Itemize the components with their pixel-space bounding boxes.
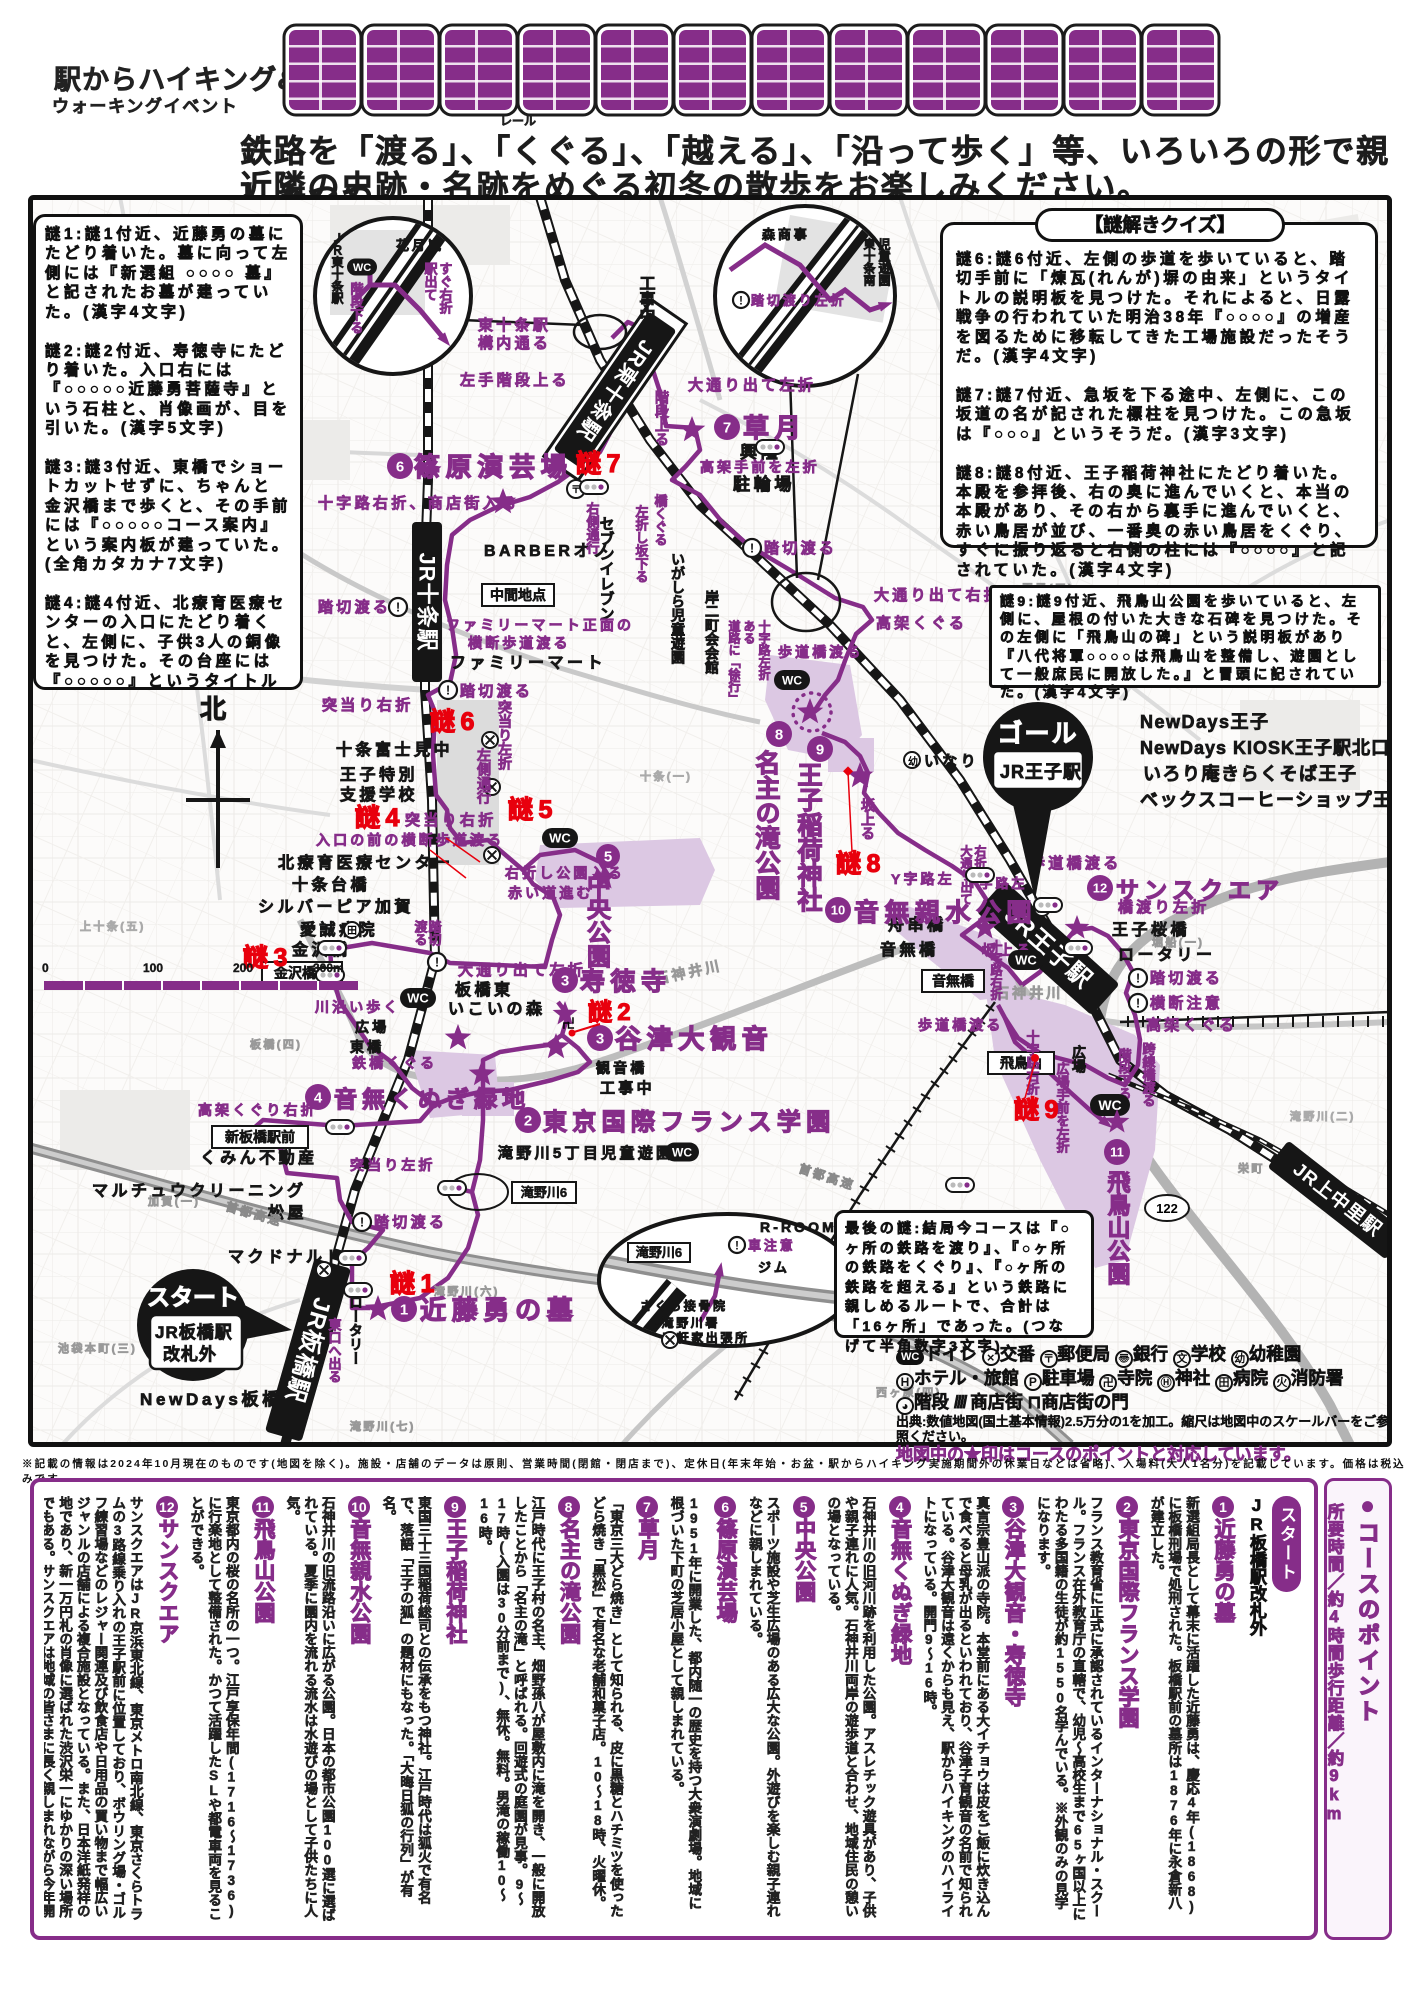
svg-text:踏切渡る: 踏切渡る [460, 682, 533, 700]
svg-text:右折: 右折 [973, 844, 987, 870]
svg-text:渡る: 渡る [413, 919, 428, 946]
svg-text:謎7: 謎7 [576, 450, 626, 478]
svg-text:幼: 幼 [908, 755, 918, 768]
svg-text:5: 5 [604, 848, 612, 865]
svg-text:Y字路左: Y字路左 [891, 871, 955, 887]
svg-text:NewDays板橋: NewDays板橋 [140, 1389, 283, 1409]
svg-text:十字路右折: 十字路右折 [1025, 1029, 1041, 1096]
svg-text:ロータリー: ロータリー [348, 1295, 364, 1365]
svg-text:謎4: 謎4 [355, 804, 405, 832]
svg-text:広場: 広場 [355, 1019, 389, 1035]
svg-text:100: 100 [143, 961, 163, 975]
svg-text:中間地点: 中間地点 [490, 587, 546, 603]
svg-text:WC: WC [672, 1145, 692, 1159]
svg-text:栄町: 栄町 [1237, 1161, 1265, 1175]
svg-text:横断注意: 横断注意 [1150, 994, 1223, 1012]
svg-text:橋くぐる: 橋くぐる [653, 493, 668, 546]
svg-text:赤い道進む: 赤い道進む [508, 885, 594, 901]
svg-text:歩道橋渡る: 歩道橋渡る [778, 644, 864, 660]
svg-text:北: 北 [200, 694, 232, 724]
svg-text:NewDays KIOSK王子駅北口店: NewDays KIOSK王子駅北口店 [1140, 737, 1392, 758]
svg-text:東京国際フランス学園: 東京国際フランス学園 [543, 1108, 836, 1136]
svg-text:十字路右折、商店街入る: 十字路右折、商店街入る [318, 494, 519, 512]
svg-text:加賀(一): 加賀(一) [147, 1194, 200, 1208]
svg-text:観音橋: 観音橋 [596, 1060, 647, 1076]
svg-text:1: 1 [400, 1301, 408, 1318]
svg-text:堀船(一): 堀船(一) [1152, 935, 1204, 949]
svg-text:岸二町会会館: 岸二町会会館 [704, 589, 720, 675]
svg-text:首都高速: 首都高速 [224, 1198, 284, 1229]
svg-text:ゴール: ゴール [997, 719, 1078, 748]
svg-text:踏切渡る: 踏切渡る [1150, 969, 1223, 987]
svg-text:名主の滝公園: 名主の滝公園 [752, 749, 781, 900]
svg-text:入口の前の横断歩道渡る: 入口の前の横断歩道渡る [316, 832, 504, 848]
svg-text:!: ! [750, 541, 754, 556]
svg-text:NewDays王子: NewDays王子 [1140, 712, 1270, 732]
svg-text:東十条駅: 東十条駅 [478, 316, 551, 334]
svg-text:階段下る: 階段下る [1117, 1047, 1132, 1100]
svg-text:草月: 草月 [743, 413, 806, 443]
svg-text:寿徳寺: 寿徳寺 [580, 967, 672, 996]
svg-text:いこいの森: いこいの森 [448, 999, 546, 1018]
svg-text:滝野川6: 滝野川6 [521, 1185, 567, 1200]
svg-text:上十条(五): 上十条(五) [80, 919, 146, 933]
svg-text:!: ! [360, 1215, 364, 1230]
svg-text:右側通行: 右側通行 [585, 501, 601, 555]
svg-text:突当り左折: 突当り左折 [497, 699, 513, 771]
svg-text:シルバーピア加賀: シルバーピア加賀 [258, 897, 414, 916]
svg-text:工事中: 工事中 [637, 275, 656, 324]
svg-text:首都高速: 首都高速 [797, 1161, 857, 1193]
svg-text:3: 3 [561, 972, 569, 989]
svg-text:石神井川: 石神井川 [994, 985, 1063, 1001]
svg-text:謎9: 謎9 [1014, 1096, 1064, 1124]
svg-text:音無親水公園: 音無親水公園 [854, 898, 1037, 927]
svg-text:飛鳥山公園: 飛鳥山公園 [1104, 1170, 1131, 1285]
svg-text:4: 4 [314, 1089, 323, 1106]
svg-text:7: 7 [723, 419, 731, 436]
svg-text:愛誠病院: 愛誠病院 [300, 920, 378, 939]
svg-text:新板橋駅前: 新板橋駅前 [225, 1129, 295, 1145]
svg-text:十字路右折: 十字路右折 [989, 939, 1003, 1001]
svg-text:0: 0 [42, 961, 49, 975]
svg-text:左手階段上る: 左手階段上る [459, 371, 570, 389]
svg-text:踏切渡る: 踏切渡る [318, 598, 391, 616]
svg-text:池袋本町(三): 池袋本町(三) [58, 1341, 137, 1355]
svg-text:突当り左折: 突当り左折 [350, 1157, 436, 1173]
svg-text:大通り出て右折: 大通り出て右折 [874, 586, 1002, 604]
svg-text:300m: 300m [313, 961, 344, 975]
svg-text:WC: WC [782, 673, 802, 687]
svg-text:支援学校: 支援学校 [339, 785, 418, 804]
svg-text:工事中: 工事中 [600, 1079, 655, 1097]
svg-text:12: 12 [1093, 881, 1107, 896]
svg-text:構内通る: 構内通る [478, 334, 551, 352]
svg-text:謎8: 謎8 [836, 850, 886, 878]
svg-text:横断歩道渡る: 横断歩道渡る [468, 635, 571, 651]
svg-text:板橋(四): 板橋(四) [250, 1037, 302, 1051]
svg-text:板橋東: 板橋東 [455, 980, 514, 999]
svg-text:跨線橋渡る: 跨線橋渡る [1141, 1042, 1156, 1107]
svg-text:セブンイレブン: セブンイレブン [598, 516, 615, 621]
svg-text:WC: WC [549, 831, 571, 846]
svg-text:踏切: 踏切 [427, 919, 442, 947]
svg-text:踏切渡る: 踏切渡る [764, 539, 837, 557]
svg-text:坂上る: 坂上る [860, 797, 876, 840]
svg-text:音無くぬぎ緑地: 音無くぬぎ緑地 [334, 1086, 530, 1112]
svg-text:2: 2 [524, 1112, 532, 1129]
svg-text:駐輪場: 駐輪場 [733, 474, 795, 494]
svg-text:!: ! [396, 600, 400, 615]
svg-text:近藤勇の墓: 近藤勇の墓 [420, 1295, 579, 1325]
svg-text:ファミリーマート正面の: ファミリーマート正面の [446, 617, 634, 633]
svg-text:高架くぐり右折: 高架くぐり右折 [198, 1102, 318, 1118]
svg-text:突当り右折: 突当り右折 [405, 811, 497, 829]
svg-text:階段上る: 階段上る [654, 389, 670, 446]
svg-text:10: 10 [831, 903, 845, 918]
svg-text:滝野川(七): 滝野川(七) [350, 1419, 416, 1433]
svg-text:十条富士見中: 十条富士見中 [336, 740, 453, 759]
svg-text:東口へ出る: 東口へ出る [327, 1317, 342, 1383]
svg-text:謎5: 謎5 [508, 796, 558, 824]
svg-text:踏切渡る: 踏切渡る [374, 1213, 447, 1231]
svg-text:大通り出て左折: 大通り出て左折 [688, 376, 816, 394]
svg-text:左折し坂下る: 左折し坂下る [634, 504, 649, 583]
svg-text:十条(一): 十条(一) [640, 769, 692, 783]
svg-text:歩道橋渡る: 歩道橋渡る [1030, 854, 1122, 872]
svg-text:!: ! [1136, 971, 1140, 986]
svg-text:十条台橋: 十条台橋 [292, 875, 370, 894]
svg-text:音無橋: 音無橋 [932, 973, 975, 989]
svg-text:いろり庵きらくそば王子: いろり庵きらくそば王子 [1143, 763, 1358, 784]
svg-text:音無橋: 音無橋 [880, 940, 939, 959]
svg-text:北療育医療センター: 北療育医療センター [278, 853, 454, 872]
svg-text:6: 6 [396, 458, 404, 475]
svg-text:高架くぐる: 高架くぐる [1146, 1016, 1237, 1034]
svg-text:突当り右折: 突当り右折 [322, 696, 414, 714]
svg-text:!: ! [1136, 996, 1140, 1011]
svg-text:謎1: 謎1 [390, 1270, 440, 1298]
svg-text:WC: WC [407, 991, 429, 1006]
svg-text:ある: ある [742, 620, 756, 644]
svg-text:中央公園: 中央公園 [583, 872, 611, 969]
svg-text:謎6: 謎6 [430, 708, 480, 736]
svg-text:いなり: いなり [924, 753, 979, 770]
svg-text:9: 9 [816, 741, 824, 758]
svg-text:スタート: スタート [147, 1284, 239, 1310]
svg-text:くみん不動産: くみん不動産 [200, 1148, 318, 1167]
svg-text:改札外: 改札外 [163, 1344, 217, 1364]
svg-text:広場: 広場 [1071, 1044, 1087, 1074]
svg-text:WC: WC [1015, 953, 1037, 968]
svg-text:200: 200 [233, 961, 253, 975]
svg-text:11: 11 [1110, 1145, 1124, 1160]
svg-text:JR王子駅: JR王子駅 [1000, 762, 1082, 782]
svg-text:ベックスコーヒーショップ王子: ベックスコーヒーショップ王子 [1140, 789, 1392, 810]
svg-text:道路に「徐行」: 道路に「徐行」 [727, 619, 741, 704]
svg-text:篠原演芸場: 篠原演芸場 [414, 452, 573, 482]
svg-text:いがしら児童遊園: いがしら児童遊園 [670, 552, 686, 665]
svg-text:JR板橋駅: JR板橋駅 [155, 1322, 233, 1342]
svg-text:!: ! [435, 955, 439, 970]
svg-text:ファミリーマート: ファミリーマート [450, 655, 606, 672]
svg-text:谷津大観音: 谷津大観音 [615, 1024, 774, 1054]
svg-text:高架くぐる: 高架くぐる [876, 614, 967, 632]
svg-text:滝野川5丁目児童遊園: 滝野川5丁目児童遊園 [498, 1144, 674, 1162]
svg-text:122: 122 [1156, 1201, 1178, 1216]
svg-text:滝野川(二): 滝野川(二) [1290, 1109, 1356, 1123]
svg-text:3: 3 [596, 1030, 604, 1047]
svg-text:!: ! [446, 683, 450, 698]
svg-text:鉄橋くぐる: 鉄橋くぐる [352, 1055, 437, 1071]
svg-text:左側通行: 左側通行 [476, 747, 492, 805]
svg-text:田: 田 [347, 925, 357, 937]
svg-text:8: 8 [775, 726, 783, 743]
svg-text:WC: WC [1098, 1097, 1121, 1113]
svg-text:東橋: 東橋 [350, 1039, 384, 1055]
svg-text:高架手前を左折: 高架手前を左折 [700, 459, 820, 475]
svg-text:王子稲荷神社: 王子稲荷神社 [794, 762, 823, 912]
svg-text:歩道橋渡る: 歩道橋渡る [918, 1017, 1004, 1033]
svg-text:謎2: 謎2 [588, 999, 636, 1026]
svg-text:川沿い歩く: 川沿い歩く [314, 999, 401, 1015]
svg-text:王子特別: 王子特別 [340, 765, 418, 784]
svg-text:サンスクエア: サンスクエア [1116, 877, 1284, 903]
svg-text:十字路左折: 十字路左折 [757, 619, 771, 681]
